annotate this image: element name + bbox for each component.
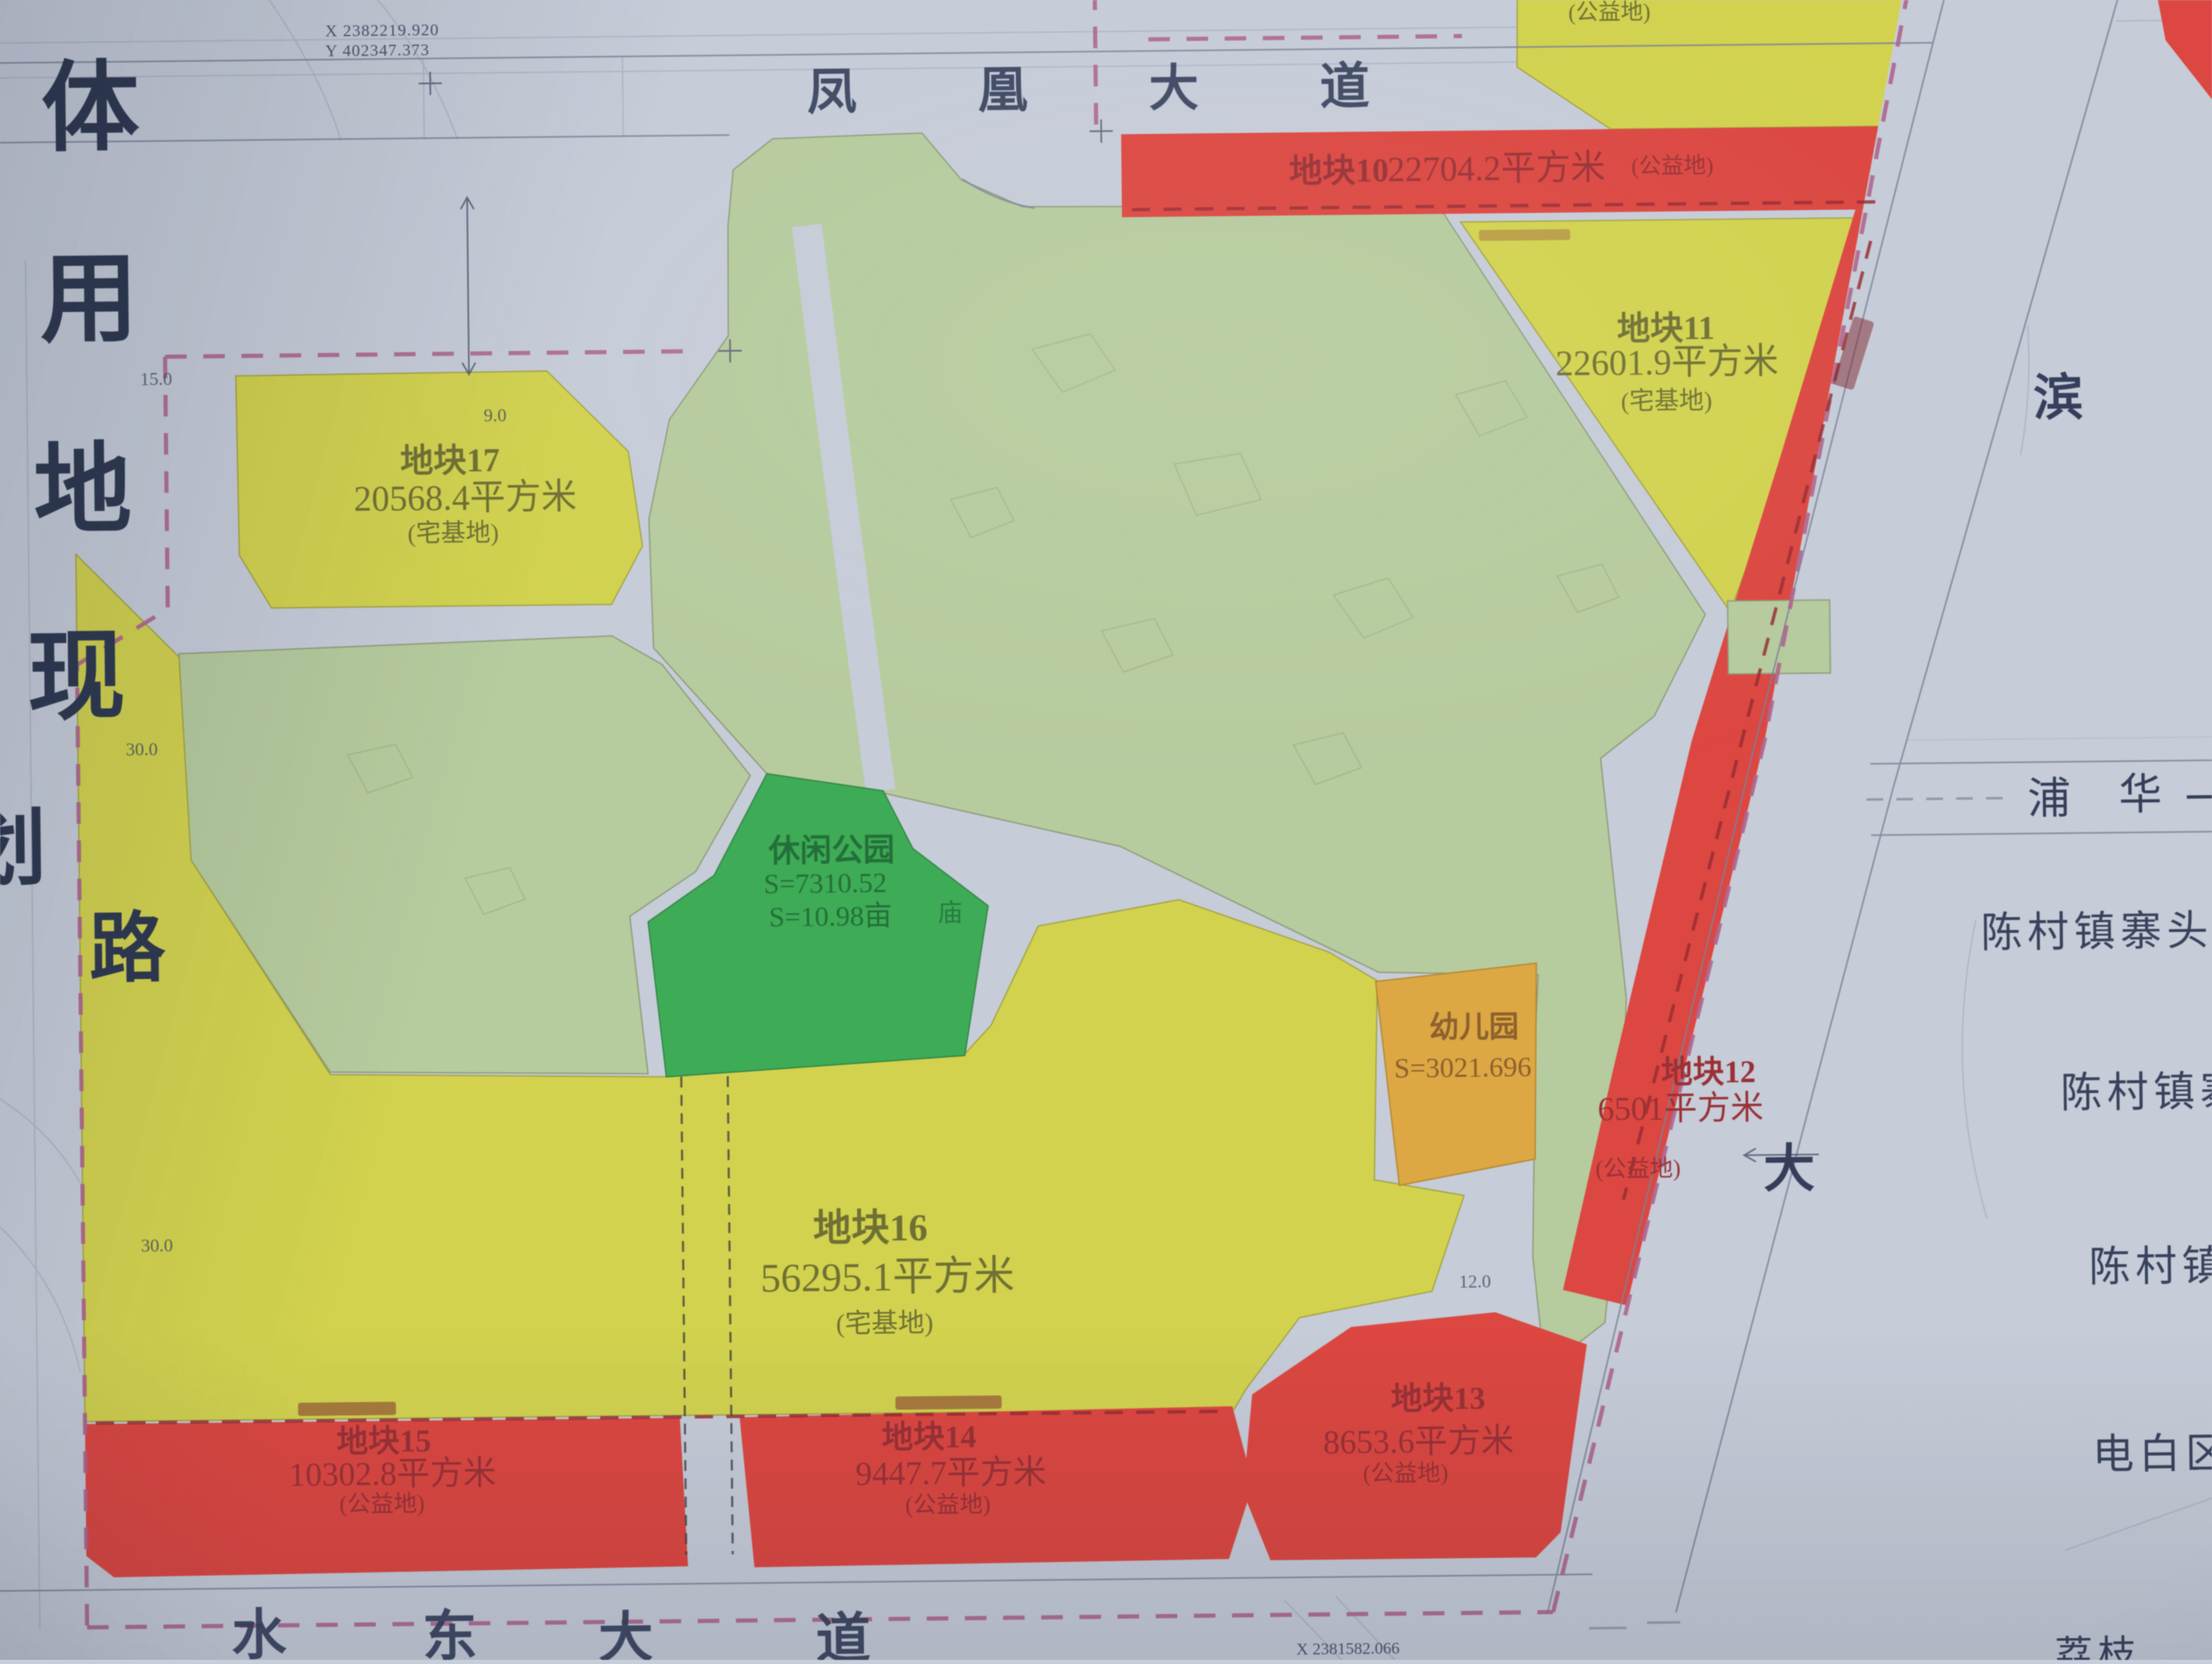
parcel-16-type: (宅基地) — [836, 1307, 933, 1338]
dim-30b: 30.0 — [141, 1235, 173, 1256]
parcel-10-type: (公益地) — [1631, 153, 1713, 178]
fenghuang-char-1: 凰 — [977, 63, 1028, 119]
dim-12: 12.0 — [1459, 1271, 1491, 1291]
coord-top-x: X 2382219.920 — [325, 21, 440, 40]
parcel-15-type: (公益地) — [339, 1491, 425, 1518]
parcel-12-type: (公益地) — [1596, 1155, 1681, 1183]
place-label-1: 陈村镇寨头小 — [1981, 906, 2212, 956]
parcel-13-area: 8653.6平方米 — [1323, 1422, 1514, 1461]
parcel-12-area: 6501平方米 — [1597, 1089, 1763, 1128]
parcel-11-area: 22601.9平方米 — [1556, 342, 1779, 383]
parcel-10-area: 22704.2平方米 — [1387, 149, 1605, 190]
road-label-left-lu: 路 — [89, 906, 167, 992]
kindergarten-area: S=3021.696 — [1394, 1052, 1532, 1085]
puhua-char-0: 浦 — [2027, 776, 2071, 824]
map-canvas: X 2382219.920 Y 402347.373 X 2381582.066… — [0, 0, 2212, 1660]
coord-bottom-x: X 2381582.066 — [1296, 1639, 1400, 1658]
place-label-2: 陈村镇寨 — [2060, 1068, 2212, 1116]
place-label-4: 电白区 — [2093, 1430, 2212, 1478]
parcel-16-name: 地块16 — [813, 1206, 928, 1249]
dim-30a: 30.0 — [126, 739, 158, 759]
parcel-15-area: 10302.8平方米 — [289, 1454, 496, 1494]
leisure-park-area1: S=7310.52 — [763, 868, 887, 900]
dim-15: 15.0 — [140, 368, 173, 389]
parcel-11-name: 地块11 — [1617, 309, 1715, 347]
bin-avenue-char-1: 大 — [1763, 1141, 1815, 1198]
planning-map-svg: X 2382219.920 Y 402347.373 X 2381582.066… — [0, 0, 2212, 1660]
parcel-14-type: (公益地) — [905, 1491, 991, 1519]
fenghuang-char-3: 道 — [1319, 60, 1370, 115]
title-char-4: 现 — [27, 622, 125, 732]
shuidong-char-0: 水 — [231, 1605, 288, 1660]
parcel-17-type: (宅基地) — [407, 520, 499, 548]
parcel-11-type: (宅基地) — [1620, 387, 1712, 415]
place-label-3: 陈村镇 — [2088, 1242, 2212, 1291]
kindergarten-name: 幼儿园 — [1429, 1010, 1518, 1044]
title-char-3: 地 — [33, 436, 132, 545]
dim-9: 9.0 — [484, 405, 507, 426]
title-char-2: 用 — [40, 245, 139, 354]
shuidong-char-2: 大 — [598, 1608, 654, 1660]
parcel-16-area: 56295.1平方米 — [760, 1252, 1015, 1300]
parcel-13-type: (公益地) — [1363, 1460, 1449, 1487]
parcel-10-name: 地块10 — [1289, 151, 1388, 189]
title-char-1: 体 — [41, 54, 139, 163]
parcel-17-area: 20568.4平方米 — [353, 478, 577, 520]
leisure-park-area2: S=10.98亩 — [769, 900, 893, 934]
puhua-dash — [2187, 797, 2212, 798]
coord-top-y: Y 402347.373 — [325, 41, 430, 60]
map-rotated-group: X 2382219.920 Y 402347.373 X 2381582.066… — [0, 0, 2212, 1660]
parcel-14-name: 地块14 — [881, 1420, 976, 1456]
parcel-12-name: 地块12 — [1661, 1055, 1756, 1091]
leisure-park-name: 休闲公园 — [767, 833, 894, 870]
title-char-5-partial: 划 — [0, 803, 47, 895]
bin-avenue-char-0: 滨 — [2033, 371, 2083, 427]
place-label-bottom-right: 荔枝 — [2054, 1633, 2141, 1660]
fenghuang-char-0: 凤 — [806, 65, 857, 120]
top-right-parcel-type: (公益地) — [1568, 0, 1650, 25]
temple-label: 庙 — [938, 900, 962, 927]
parcel-14-area: 9447.7平方米 — [855, 1453, 1046, 1492]
planning-map-photo: { "colors": { "background": "#c7ceda", "… — [0, 0, 2212, 1660]
parcel-13-name: 地块13 — [1391, 1381, 1485, 1417]
shuidong-char-1: 东 — [422, 1607, 478, 1660]
fenghuang-char-2: 大 — [1148, 61, 1199, 117]
parcel-17-name: 地块17 — [400, 442, 499, 480]
shuidong-char-3: 道 — [816, 1609, 871, 1660]
puhua-char-1: 华 — [2118, 772, 2162, 820]
